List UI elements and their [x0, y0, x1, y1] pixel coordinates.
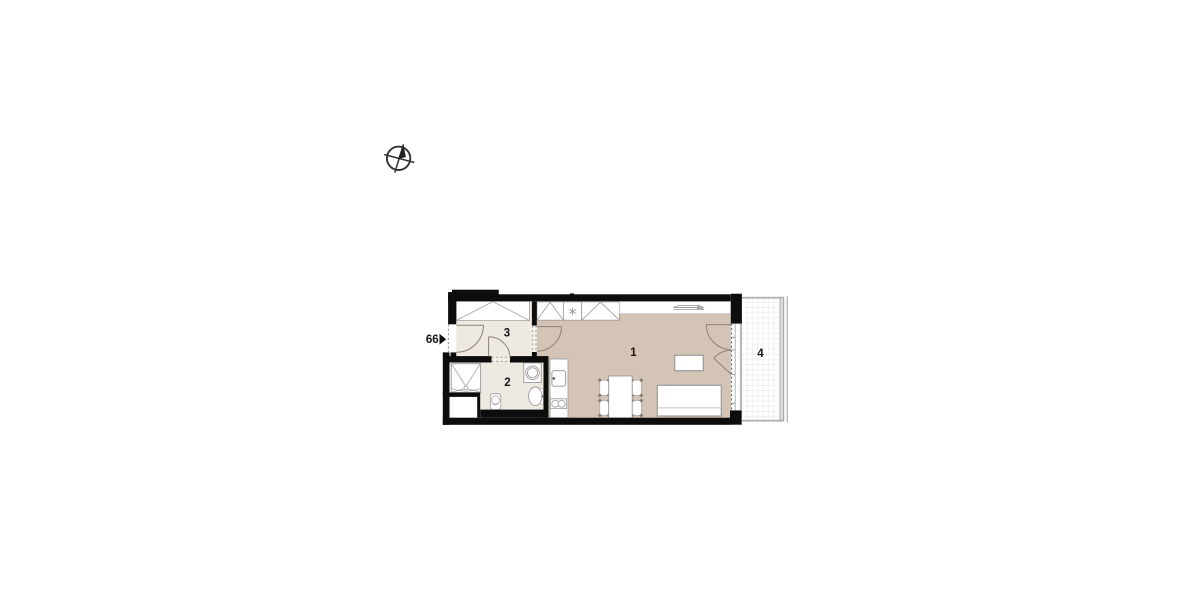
svg-text:66: 66 — [426, 334, 439, 346]
svg-text:4: 4 — [757, 348, 764, 360]
svg-text:2: 2 — [504, 377, 510, 389]
svg-text:1: 1 — [630, 347, 637, 359]
svg-text:3: 3 — [504, 328, 510, 340]
